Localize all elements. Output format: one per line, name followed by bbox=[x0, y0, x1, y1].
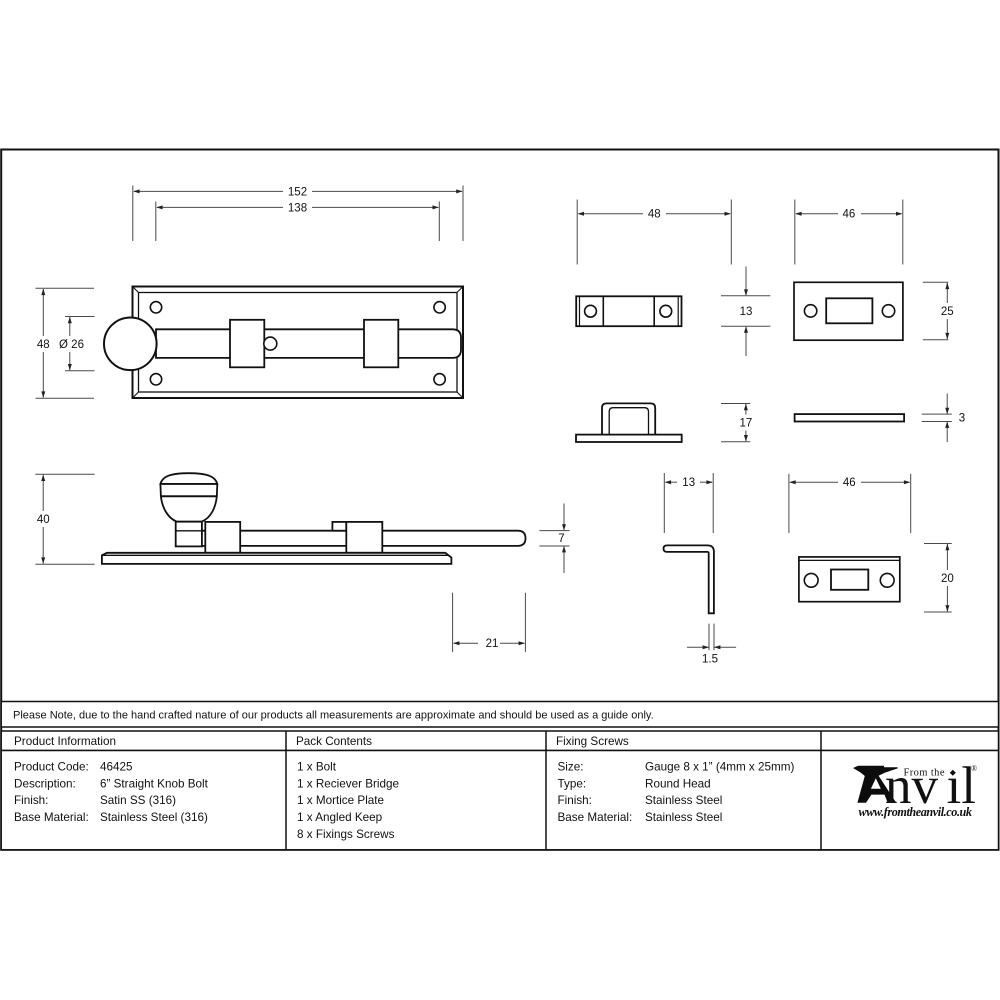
svg-text:40: 40 bbox=[37, 514, 50, 526]
svg-text:Stainless Steel: Stainless Steel bbox=[645, 811, 722, 824]
svg-text:Base Material:: Base Material: bbox=[558, 811, 633, 824]
svg-text:1 x Bolt: 1 x Bolt bbox=[297, 761, 337, 774]
svg-text:48: 48 bbox=[37, 339, 50, 351]
svg-text:Description:: Description: bbox=[14, 777, 76, 790]
svg-text:Base Material:: Base Material: bbox=[14, 811, 89, 824]
svg-text:®: ® bbox=[971, 764, 977, 773]
svg-text:From the: From the bbox=[904, 767, 945, 778]
svg-text:46: 46 bbox=[843, 209, 856, 221]
svg-text:Size:: Size: bbox=[558, 761, 584, 774]
svg-text:Finish:: Finish: bbox=[558, 794, 592, 807]
svg-text:3: 3 bbox=[959, 413, 965, 425]
svg-text:46425: 46425 bbox=[100, 761, 133, 774]
svg-text:Round Head: Round Head bbox=[645, 777, 711, 790]
svg-text:Gauge 8 x 1” (4mm x 25mm): Gauge 8 x 1” (4mm x 25mm) bbox=[645, 761, 794, 774]
svg-text:Pack Contents: Pack Contents bbox=[296, 735, 372, 748]
svg-text:13: 13 bbox=[682, 477, 695, 489]
svg-text:20: 20 bbox=[941, 573, 954, 585]
svg-text:6” Straight Knob Bolt: 6” Straight Knob Bolt bbox=[100, 777, 209, 790]
svg-text:13: 13 bbox=[740, 306, 753, 318]
svg-text:48: 48 bbox=[648, 209, 661, 221]
svg-text:Satin SS (316): Satin SS (316) bbox=[100, 794, 176, 807]
svg-text:Stainless Steel (316): Stainless Steel (316) bbox=[100, 811, 208, 824]
svg-text:Product Information: Product Information bbox=[14, 735, 116, 748]
svg-text:46: 46 bbox=[843, 477, 856, 489]
svg-text:17: 17 bbox=[740, 417, 753, 429]
svg-text:1.5: 1.5 bbox=[702, 654, 718, 666]
svg-text:7: 7 bbox=[558, 533, 564, 545]
svg-text:Finish:: Finish: bbox=[14, 794, 48, 807]
svg-text:Ø 26: Ø 26 bbox=[59, 339, 84, 351]
svg-text:Fixing Screws: Fixing Screws bbox=[556, 735, 629, 748]
svg-text:21: 21 bbox=[486, 638, 499, 650]
svg-text:www.fromtheanvil.co.uk: www.fromtheanvil.co.uk bbox=[859, 805, 973, 819]
svg-text:1 x Reciever Bridge: 1 x Reciever Bridge bbox=[297, 777, 399, 790]
svg-text:8 x Fixings Screws: 8 x Fixings Screws bbox=[297, 828, 395, 841]
svg-text:1 x Angled Keep: 1 x Angled Keep bbox=[297, 811, 383, 824]
svg-text:Stainless Steel: Stainless Steel bbox=[645, 794, 722, 807]
svg-text:Please Note, due to the hand c: Please Note, due to the hand crafted nat… bbox=[13, 710, 654, 722]
svg-text:Product Code:: Product Code: bbox=[14, 761, 89, 774]
svg-text:138: 138 bbox=[288, 202, 307, 214]
svg-text:Type:: Type: bbox=[558, 777, 587, 790]
svg-text:152: 152 bbox=[288, 186, 307, 198]
svg-text:25: 25 bbox=[941, 306, 954, 318]
svg-text:1 x Mortice Plate: 1 x Mortice Plate bbox=[297, 794, 384, 807]
